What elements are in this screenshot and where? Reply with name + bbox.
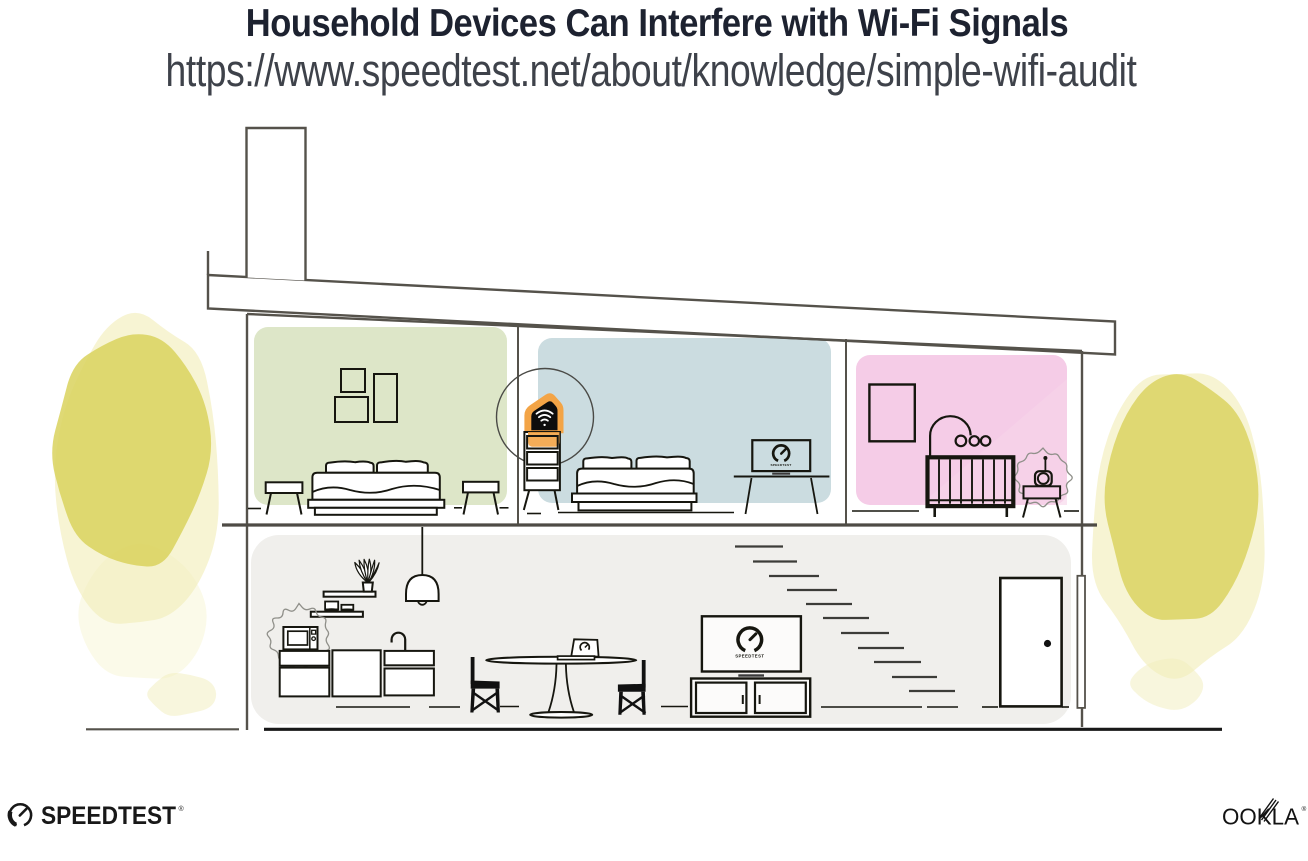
svg-text:®: ® <box>179 805 185 813</box>
svg-text:SPEEDTEST: SPEEDTEST <box>770 463 791 467</box>
svg-text:SPEEDTEST: SPEEDTEST <box>735 654 764 659</box>
svg-text:SPEEDTEST: SPEEDTEST <box>41 802 176 830</box>
svg-text:®: ® <box>1302 805 1307 813</box>
